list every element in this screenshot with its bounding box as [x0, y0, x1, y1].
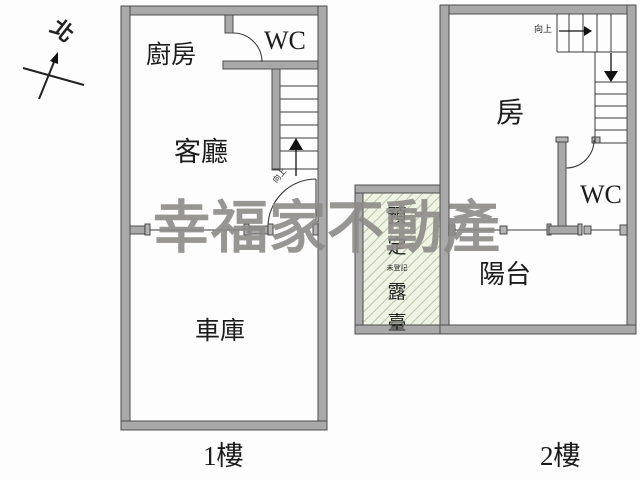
- floor2-wc-door-arc: [566, 140, 594, 168]
- stairs-right-arrow-icon: [559, 26, 592, 36]
- north-arrow-icon: [23, 52, 84, 99]
- floor1-title: 1樓: [203, 443, 244, 470]
- terrace-note: 未登記: [387, 263, 408, 273]
- terrace-char: 露: [387, 277, 406, 304]
- terrace-char: 臺: [387, 308, 406, 335]
- stairs-up-arrow-icon: [289, 138, 303, 176]
- floor1-wc-label: WC: [264, 28, 306, 54]
- floor2-balcony-label: 陽台: [479, 262, 531, 288]
- floor2-stairs-up-note: 向上: [534, 25, 552, 34]
- agency-watermark: 幸福家不動產: [153, 200, 501, 257]
- floor1-living-label: 客廳: [174, 139, 228, 166]
- floor1-kitchen-label: 廚房: [146, 43, 196, 68]
- stairs-down-arrow-icon: [604, 53, 618, 82]
- floorplan-page: 北 廚房 WC 客廳 車庫 1樓 向上 房 WC 陽台 2樓 向上 預 定 未登…: [0, 0, 640, 480]
- floor2-wc-label: WC: [580, 182, 622, 208]
- floor1-garage-label: 車庫: [195, 319, 245, 344]
- floor1-wc-door-arc: [233, 33, 262, 62]
- floor2-title: 2樓: [540, 443, 581, 470]
- floor2-room-label: 房: [496, 100, 524, 128]
- north-compass: [23, 52, 84, 99]
- floor2-stairs: [557, 14, 627, 143]
